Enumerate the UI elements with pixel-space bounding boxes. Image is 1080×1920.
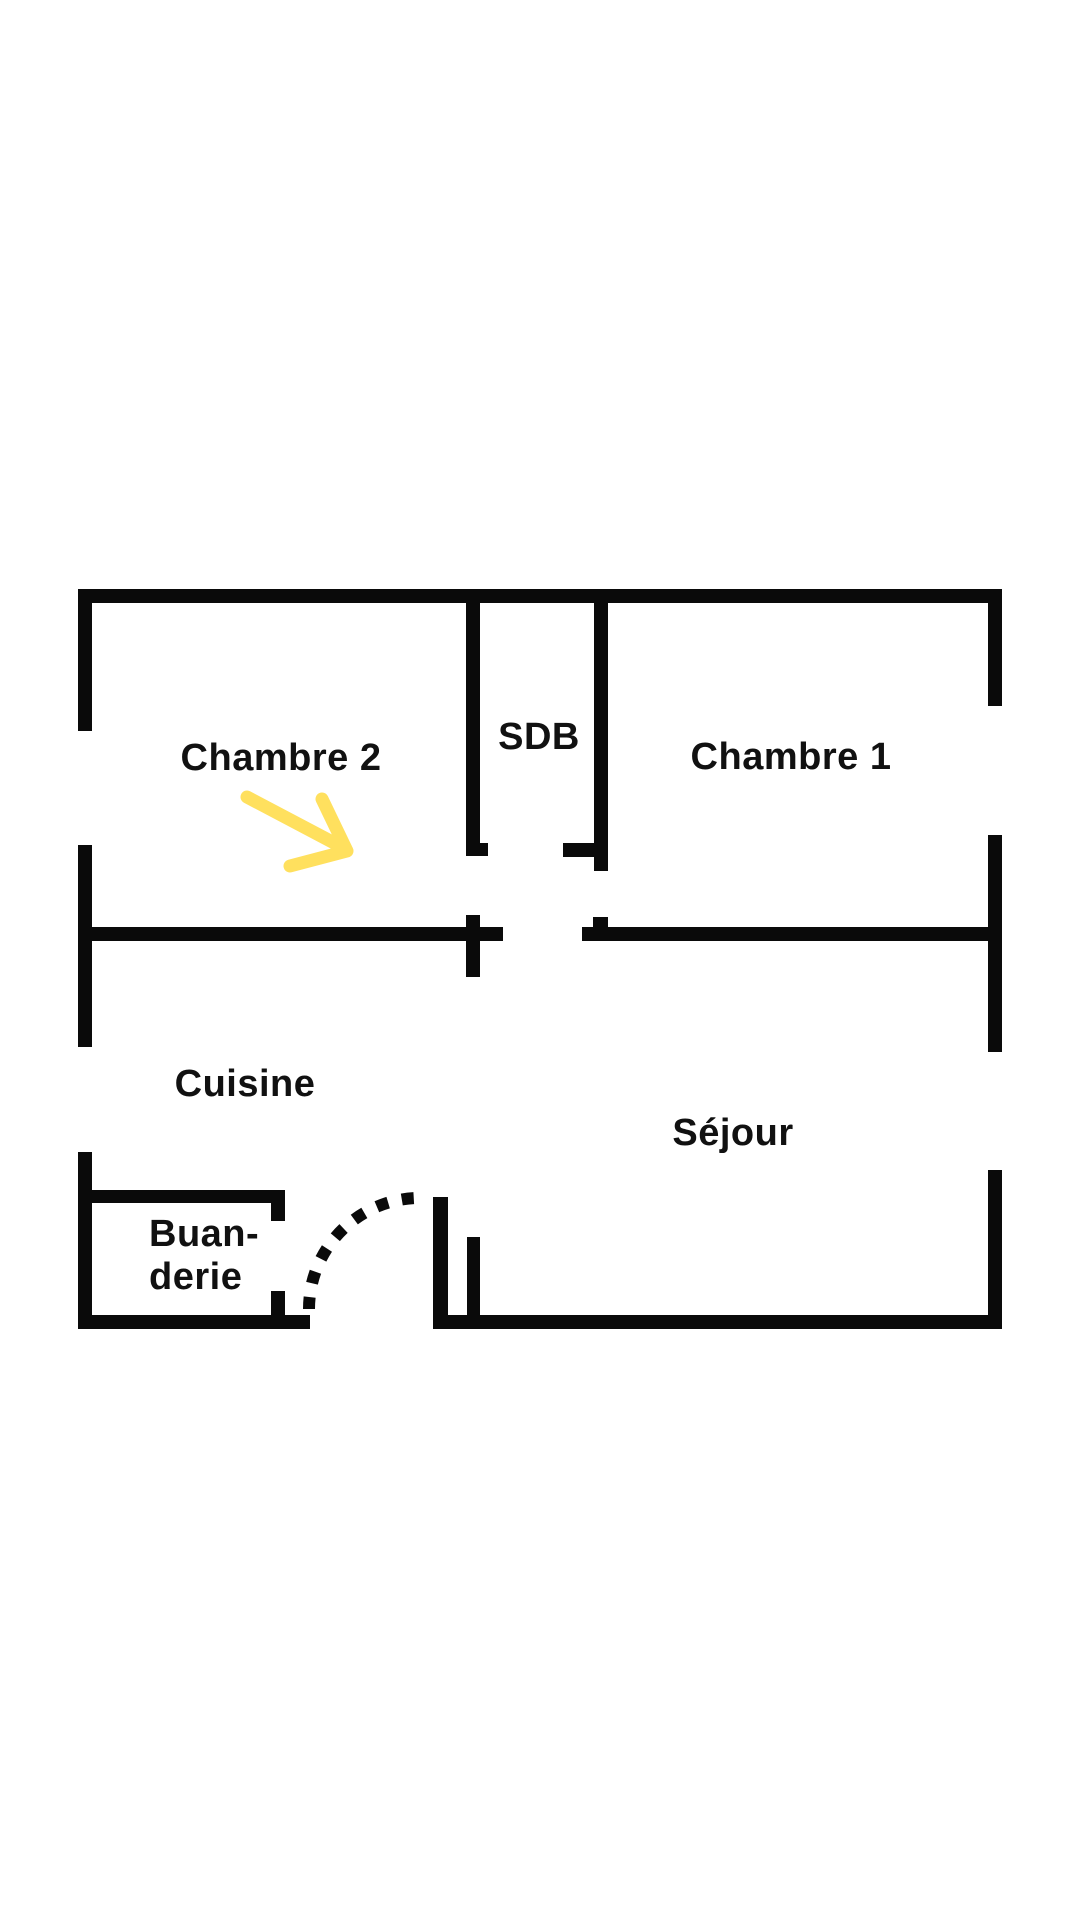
room-label-buanderie-line2: derie — [149, 1258, 242, 1296]
floor-plan: Chambre 2 SDB Chambre 1 Cuisine Séjour B… — [0, 0, 1080, 1920]
room-label-chambre-1: Chambre 1 — [691, 738, 892, 776]
room-label-sejour: Séjour — [672, 1114, 793, 1152]
room-label-buanderie-line1: Buan- — [149, 1215, 259, 1253]
room-label-chambre-2: Chambre 2 — [181, 739, 382, 777]
room-label-sdb: SDB — [498, 718, 580, 756]
door-swing-arc-icon — [309, 1198, 420, 1309]
plan-graphics — [0, 0, 1080, 1920]
room-label-cuisine: Cuisine — [175, 1065, 316, 1103]
